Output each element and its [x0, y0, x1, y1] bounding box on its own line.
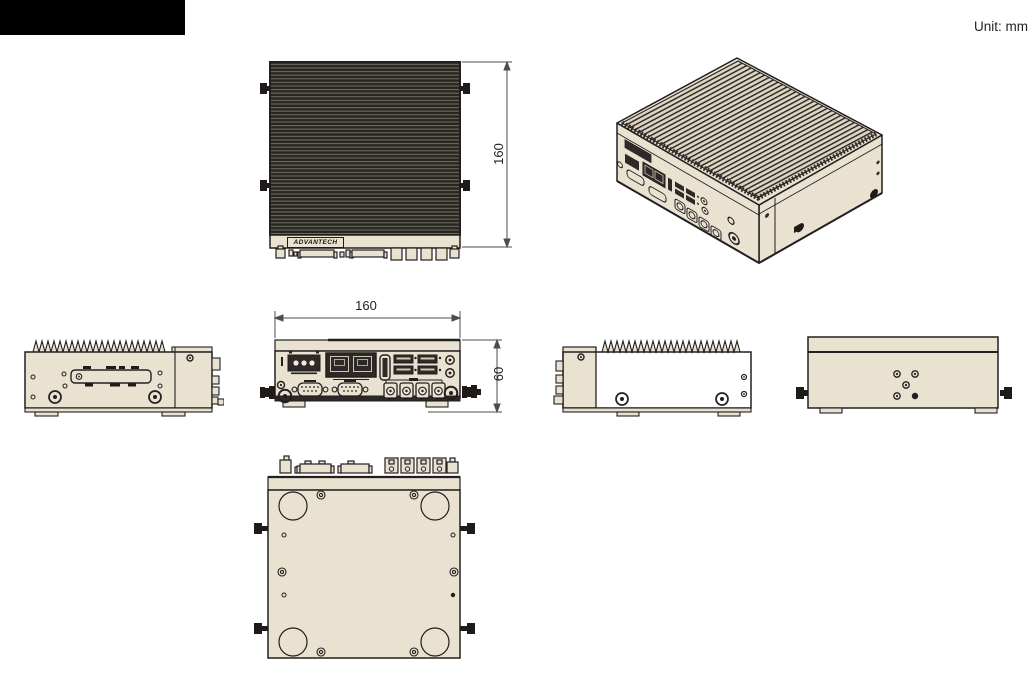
bottom-connector-profiles	[280, 456, 458, 473]
isometric-view-drawing	[595, 55, 915, 270]
front-view-height-dimension: 60	[492, 355, 506, 393]
lan-ports	[326, 353, 376, 380]
front-view-drawing	[258, 294, 512, 422]
top-view-depth-dimension: 160	[492, 135, 506, 173]
rear-chassis	[808, 337, 998, 413]
bottom-view-drawing	[253, 446, 487, 664]
right-side-screws-antennas	[578, 354, 747, 405]
rear-view-drawing	[795, 330, 1013, 422]
unit-label: Unit: mm	[974, 19, 1028, 34]
left-side-expansion-slot	[71, 370, 151, 383]
front-view-width-dimension: 160	[347, 299, 385, 313]
top-view-chassis	[270, 62, 460, 248]
redacted-title-bar	[0, 0, 185, 35]
right-side-edge-tabs	[554, 361, 563, 404]
display-port	[380, 355, 390, 380]
right-side-view-drawing	[545, 330, 759, 420]
advantech-logo-text: ADVANTECH	[294, 239, 338, 246]
bottom-plate	[268, 477, 460, 658]
mechanical-dimensions-page: Unit: mm	[0, 0, 1035, 674]
left-side-edge-tabs	[212, 358, 224, 405]
left-side-view-drawing	[22, 330, 224, 420]
advantech-logo: ADVANTECH	[287, 237, 344, 248]
